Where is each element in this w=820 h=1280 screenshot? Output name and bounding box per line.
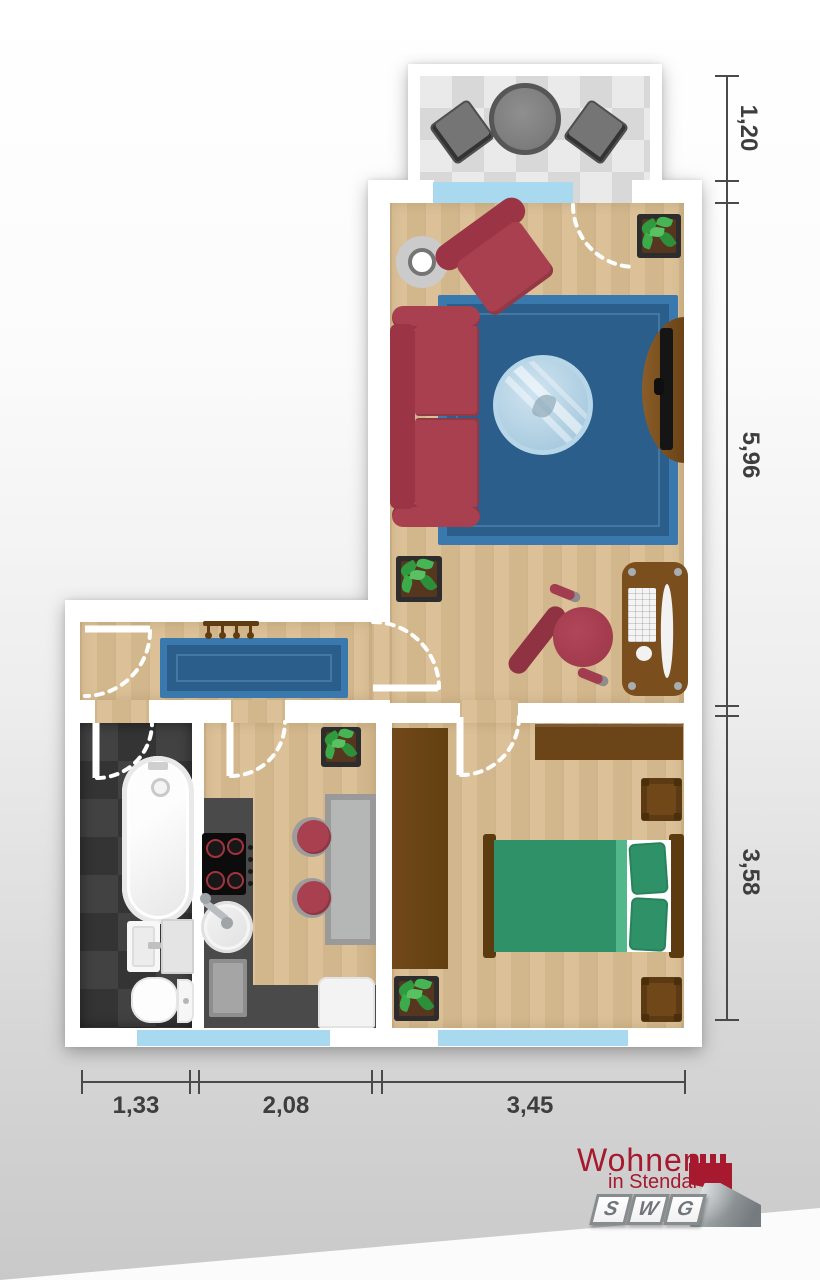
wall-patch-left [416, 180, 434, 203]
cooktop-knob [248, 857, 253, 862]
potted-plant [637, 214, 681, 258]
nightstand-leg [642, 978, 649, 985]
coat-hook-knob [205, 632, 212, 639]
doorway-hall-living [372, 622, 390, 700]
coffee-table [493, 355, 593, 455]
desk-chair-seat [553, 607, 613, 667]
burner [206, 871, 225, 890]
coat-hook-knob [247, 632, 254, 639]
kitchen-faucet-head [221, 917, 233, 929]
company-logo: Wohnen in Stendal S W G [555, 1138, 785, 1238]
apartment-plan [0, 0, 820, 1280]
nightstand-leg [674, 813, 681, 820]
kitchen-table [325, 794, 376, 945]
bed-headboard [669, 834, 684, 958]
coat-rack [203, 621, 259, 639]
bathtub-faucet [148, 762, 168, 770]
desk-screw [674, 682, 682, 690]
sofa-cushion [415, 326, 479, 416]
tile-letter: G [675, 1198, 696, 1220]
tv-mount [654, 378, 664, 395]
desk-screw [674, 568, 682, 576]
cooktop-knob [248, 881, 253, 886]
bed [483, 834, 684, 958]
sofa-cushion [415, 418, 479, 507]
nightstand-leg [674, 1014, 681, 1021]
cooktop-knob [248, 845, 253, 850]
tile-letter: W [636, 1198, 660, 1220]
wardrobe [392, 728, 448, 969]
nightstand-leg [642, 779, 649, 786]
dimension-label-living: 5,96 [736, 432, 764, 479]
logo-line2: in Stendal [608, 1171, 697, 1194]
nightstand-leg [642, 1014, 649, 1021]
tile-letter: S [602, 1198, 621, 1220]
potted-plant [394, 976, 439, 1021]
keyboard [628, 588, 656, 642]
toilet-button [183, 998, 189, 1004]
mattress-fold [616, 840, 627, 952]
cooktop [202, 833, 246, 895]
desk-screw [628, 682, 636, 690]
bathtub-drain [151, 778, 170, 797]
window-bedroom [438, 1030, 628, 1046]
dimension-label-bedroom-height: 3,58 [736, 849, 764, 896]
floorplan-image: 1,20 5,96 3,58 1,33 2,08 3,45 Wohnen in … [0, 0, 820, 1280]
burner [206, 839, 225, 858]
washing-machine [161, 919, 194, 974]
toilet-tank [177, 979, 194, 1023]
shelf [535, 724, 683, 760]
doorway-bathroom [95, 700, 149, 723]
nightstand-leg [674, 779, 681, 786]
coat-hook-knob [219, 632, 226, 639]
dimension-label-bathroom-width: 1,33 [113, 1092, 160, 1120]
burner [227, 838, 244, 855]
coat-hook-knob [233, 632, 240, 639]
kitchen-faucet-base [200, 893, 211, 904]
potted-plant [321, 727, 361, 767]
balcony-table [489, 83, 561, 155]
dimension-label-kitchen-width: 2,08 [263, 1092, 310, 1120]
doorway-kitchen [231, 700, 285, 723]
sink-faucet [148, 942, 161, 949]
sofa [390, 306, 482, 527]
mattress [494, 840, 618, 952]
pillow [629, 897, 669, 952]
dimension-label-balcony: 1,20 [734, 105, 762, 152]
nightstand-leg [642, 813, 649, 820]
table-center-detail [530, 391, 557, 420]
toilet-bowl [131, 977, 178, 1023]
stool [297, 820, 331, 854]
hallway-rug [160, 638, 348, 698]
sofa-backrest [390, 324, 415, 509]
stool [297, 881, 331, 915]
nightstand [641, 778, 682, 821]
wall-patch-right [632, 180, 654, 203]
pillow [628, 842, 668, 895]
fridge [318, 977, 375, 1028]
mouse [636, 646, 652, 661]
dishwasher-front [213, 963, 243, 1013]
desk-screw [628, 568, 636, 576]
dishwasher [209, 959, 247, 1017]
nightstand-leg [674, 978, 681, 985]
window-bathroom-kitchen [137, 1030, 330, 1046]
rug-field [167, 645, 341, 691]
nightstand [641, 977, 682, 1022]
table-top [331, 800, 370, 939]
doorway-bedroom [460, 700, 518, 723]
potted-plant [396, 556, 442, 602]
bathroom-sink [127, 921, 160, 972]
castle-battlements [690, 1154, 730, 1163]
cooktop-knob [248, 869, 253, 874]
dimension-label-bedroom-width: 3,45 [507, 1092, 554, 1120]
burner [227, 872, 244, 889]
bathtub [122, 756, 194, 924]
